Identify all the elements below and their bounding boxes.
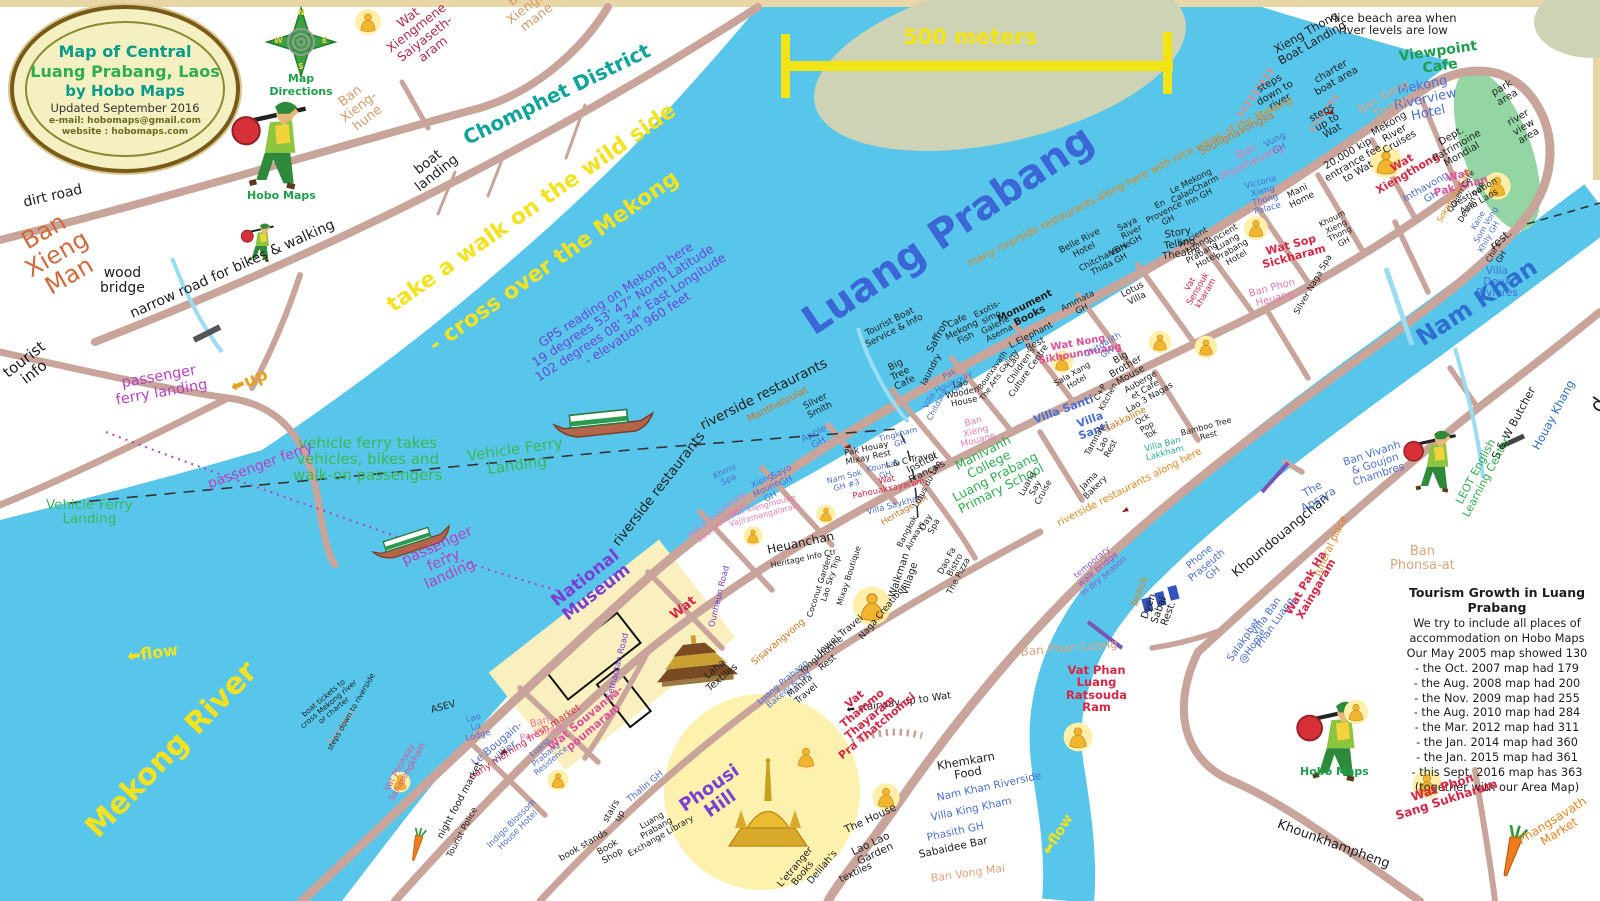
map-label: Ban Phan Luang (1020, 638, 1118, 659)
map-label: Ban Xieng- hune (330, 78, 389, 137)
map-label: Thalin GH (626, 770, 666, 806)
map-label: ◄ (843, 443, 852, 454)
map-label: Khounkhampheng (1275, 818, 1391, 872)
map-label: charter boat area (1308, 56, 1360, 99)
map-label: Wat Xiengmene Saiyaseth- aram (376, 0, 465, 76)
map-label: Bamboo Tree Rest (1180, 416, 1235, 446)
map-label: Wat Pak Ha Xaingaram (1283, 549, 1339, 622)
map-label: Dyen Sabai Rest. (1140, 592, 1180, 629)
map-label: Sala Xang Hotel (1053, 361, 1096, 396)
map-label: LEOT English Learning Center (1450, 430, 1512, 519)
map-label: Book Shop (596, 839, 625, 867)
map-label: ⬅flow (1040, 812, 1076, 858)
map-label: Laha Textiles (698, 654, 740, 694)
map-label: Khmu Spa (712, 463, 742, 490)
map-label: park area (1490, 79, 1520, 109)
map-label: Vehicle Ferry Landing (46, 498, 133, 527)
map-label: Houay Khang (1530, 378, 1577, 452)
map-label: Lao Lu Lodge (460, 711, 492, 744)
map-label: Vat Sensouk kharam (1178, 267, 1220, 312)
map-label: Ammata GH (1060, 290, 1100, 323)
map-label: Vat Phonxay Sanasongkham (380, 737, 428, 803)
map-label: The House (843, 802, 898, 836)
map-label: Ban Xiengn- mane (496, 0, 561, 39)
map-label: ⬅up (228, 366, 271, 397)
map-label: Naga Creations (858, 583, 910, 642)
map-label: Hobo Maps (1300, 766, 1369, 778)
map-label: Mekong River (80, 656, 264, 845)
map-label: ASEV (430, 700, 457, 716)
map-label: dirt road (22, 183, 84, 211)
map-label: Lotus Villa (1120, 281, 1150, 309)
map-label: Tourist Boat Service & Info (860, 304, 925, 350)
map-label: Wat Sop Sickharam (1258, 231, 1327, 271)
map-label: ◄ (1120, 506, 1131, 518)
map-label: textiles (838, 861, 874, 885)
map-label: Ban Vivanh & Goujon Chambres (1342, 440, 1409, 490)
map-label: Ban Xieng Man (8, 204, 106, 305)
labels-layer: dirt roadBan Xieng Manwood bridgenarrow … (0, 0, 1600, 901)
map-label: river view area (1506, 108, 1542, 147)
map-label: Phone Praseuth GH (1180, 540, 1234, 593)
map-label: Ounheun Road (708, 565, 732, 628)
map-label: National Museum (548, 546, 634, 624)
map-label: tourist info (0, 338, 58, 393)
map-label: Sisavangvong (750, 617, 807, 667)
map-label: C+P Kitchen (1090, 377, 1119, 412)
map-label: 500 meters (903, 26, 1037, 48)
map-label: Khemkarn Food (936, 750, 998, 784)
map-label: Victoria Xieng Thong Palace (1244, 175, 1285, 218)
map-label: Ancient Luang Prabang Hotel (1206, 222, 1255, 271)
map-label: passenger ferry landing (400, 524, 488, 597)
map-label: vehicle ferry takes vehicles, bikes and … (293, 435, 442, 483)
map-label: boat landing (404, 141, 461, 195)
map-label: Xieng Thong Boat Landing (1270, 8, 1348, 67)
map-label: Wat (668, 594, 699, 623)
map-label: Mani Home (1284, 182, 1316, 211)
map-label: Ban Phon Heuang (1248, 278, 1299, 311)
map-label: Apple GH (800, 424, 833, 454)
map-label: d (1586, 394, 1600, 417)
map-label: Vat Thammo Thayaram Pra Thatchomsi (814, 664, 918, 762)
map-label: stairs up (602, 799, 631, 830)
map-label: narrow road for bikes & walking (128, 218, 337, 322)
map-label: nice beach area when river levels are lo… (1330, 12, 1457, 37)
map-label: Ban Phonsa-at (1390, 545, 1455, 573)
map-label: passenger ferry landing (112, 362, 209, 409)
map-label: Wat Phon Sang Sukharam (1390, 765, 1499, 822)
map-label: Big Tree Cafe (884, 356, 917, 393)
map-label: Mixay Boutique (836, 545, 863, 607)
map-label: Vehicle Ferry Landing (466, 435, 566, 480)
map-label: Hobo Maps (247, 190, 316, 202)
map-label: Silver Naga Spa (1293, 254, 1335, 317)
map-of-central-luang-prabang: N E S W Map Directions Map of Central Lu… (0, 0, 1600, 901)
map-label: Phangsavath Market (1516, 795, 1596, 858)
map-label: Bangkok Airways (896, 515, 927, 553)
map-label: Vat Phan Luang Ratsouda Ram (1066, 664, 1127, 713)
map-label: Indigo Blossom House Hotel (486, 798, 545, 857)
map-label: ⬅flow (126, 641, 179, 665)
map-label: ◄ (1326, 109, 1334, 120)
map-label: Ban Vong Mai (930, 863, 1006, 885)
map-label: wood bridge (100, 266, 145, 296)
map-label: Lao Lao Garden (850, 831, 896, 869)
map-label: temporary walk bridge in dry season (1068, 541, 1129, 599)
